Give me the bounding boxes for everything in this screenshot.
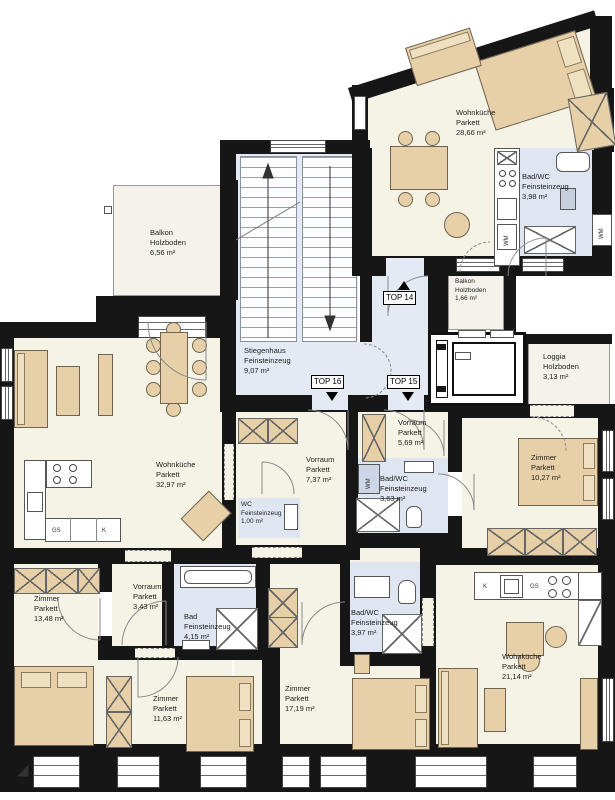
- top15-tag: TOP 15: [387, 375, 420, 389]
- room-label-vorraum-737: VorraumParkett7,37 m²: [306, 455, 334, 485]
- room-label-vorraum-343: VorraumParkett3,43 m²: [133, 582, 161, 612]
- top16-tag: TOP 16: [311, 375, 344, 389]
- room-label-stiegenhaus: StiegenhausFeinsteinzeug9,07 m²: [244, 346, 291, 376]
- door-arcs: [58, 238, 546, 697]
- room-label-badwc-397: Bad/WCFeinsteinzeug3,97 m²: [351, 608, 398, 638]
- room-label-wc-100: WCFeinsteinzeug1,00 m²: [241, 501, 281, 527]
- room-label-bad-415: BadFeinsteinzeug4,15 m²: [184, 612, 231, 642]
- room-label-badwc-363: Bad/WCFeinsteinzeug3,63 m²: [380, 474, 427, 504]
- top14-tag: TOP 14: [383, 291, 416, 305]
- room-label-wohnkueche-3297: WohnkücheParkett32,97 m²: [156, 460, 195, 490]
- room-label-balkon-166: BalkonHolzboden1,66 m²: [455, 278, 486, 304]
- room-label-zimmer-1719: ZimmerParkett17,19 m²: [285, 684, 315, 714]
- floor-plan: WM WM GS K WM: [0, 0, 615, 800]
- room-label-zimmer-1348: ZimmerParkett13,48 m²: [34, 594, 64, 624]
- room-label-badwc-398: Bad/WCFeinsteinzeug3,98 m²: [522, 172, 569, 202]
- top15-arrow-icon: [402, 392, 414, 401]
- room-label-loggia-313: LoggiaHolzboden3,13 m²: [543, 352, 579, 382]
- room-label-vorraum-569: VorraumParkett5,69 m²: [398, 418, 426, 448]
- room-label-wohnkueche-2114: WohnkücheParkett21,14 m²: [502, 652, 541, 682]
- room-label-zimmer-1163: ZimmerParkett11,63 m²: [153, 694, 182, 724]
- room-label-balkon-656: BalkonHolzboden6,56 m²: [150, 228, 186, 258]
- room-label-wohnkueche-2866: WohnkücheParkett28,66 m²: [456, 108, 495, 138]
- plan-mark: [18, 766, 28, 776]
- top14-arrow-icon: [398, 281, 410, 290]
- dashed-arcs: [364, 242, 566, 451]
- room-label-zimmer-1027: ZimmerParkett10,27 m²: [531, 453, 561, 483]
- top16-arrow-icon: [326, 392, 338, 401]
